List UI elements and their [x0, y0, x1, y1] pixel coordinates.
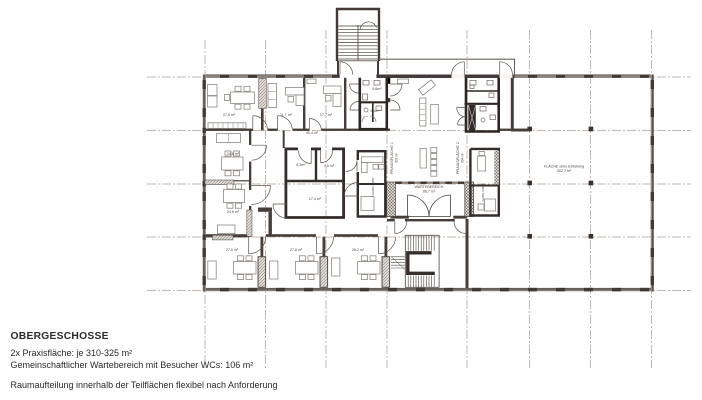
svg-text:24,6 m²: 24,6 m²	[227, 210, 240, 214]
svg-text:17,4 m²: 17,4 m²	[309, 197, 322, 201]
svg-text:302,7 m²: 302,7 m²	[557, 169, 572, 173]
svg-text:WARTEBEREICH: WARTEBEREICH	[415, 185, 444, 189]
svg-text:GARD./ABST.: GARD./ABST.	[481, 182, 485, 201]
svg-text:27,0 m²: 27,0 m²	[223, 113, 236, 117]
svg-text:24,6 m²: 24,6 m²	[227, 152, 240, 156]
svg-text:11,7 m²: 11,7 m²	[280, 113, 293, 117]
svg-text:28,2 m²: 28,2 m²	[352, 248, 365, 252]
svg-text:302 m²: 302 m²	[395, 153, 399, 163]
svg-text:27,0 m²: 27,0 m²	[226, 248, 239, 252]
svg-text:9,1m²: 9,1m²	[370, 109, 380, 113]
svg-text:40,4 m²: 40,4 m²	[306, 131, 319, 135]
svg-text:PRAXISFLÄCHE 2: PRAXISFLÄCHE 2	[456, 142, 460, 174]
svg-text:GARD./ABST.: GARD./ABST.	[371, 176, 375, 195]
svg-text:304 m²: 304 m²	[461, 153, 465, 163]
svg-text:6,3m²: 6,3m²	[296, 163, 306, 167]
svg-text:PRAXISFLÄCHE 1: PRAXISFLÄCHE 1	[390, 142, 394, 174]
svg-text:27,8 m²: 27,8 m²	[290, 248, 303, 252]
svg-text:86,7 m²: 86,7 m²	[423, 190, 436, 194]
svg-text:17,7 m²: 17,7 m²	[320, 113, 333, 117]
svg-text:FLÄCHE ohne Einteilung: FLÄCHE ohne Einteilung	[544, 165, 584, 169]
svg-text:7,5 m²: 7,5 m²	[324, 164, 335, 168]
svg-text:5,6m²: 5,6m²	[372, 87, 382, 91]
